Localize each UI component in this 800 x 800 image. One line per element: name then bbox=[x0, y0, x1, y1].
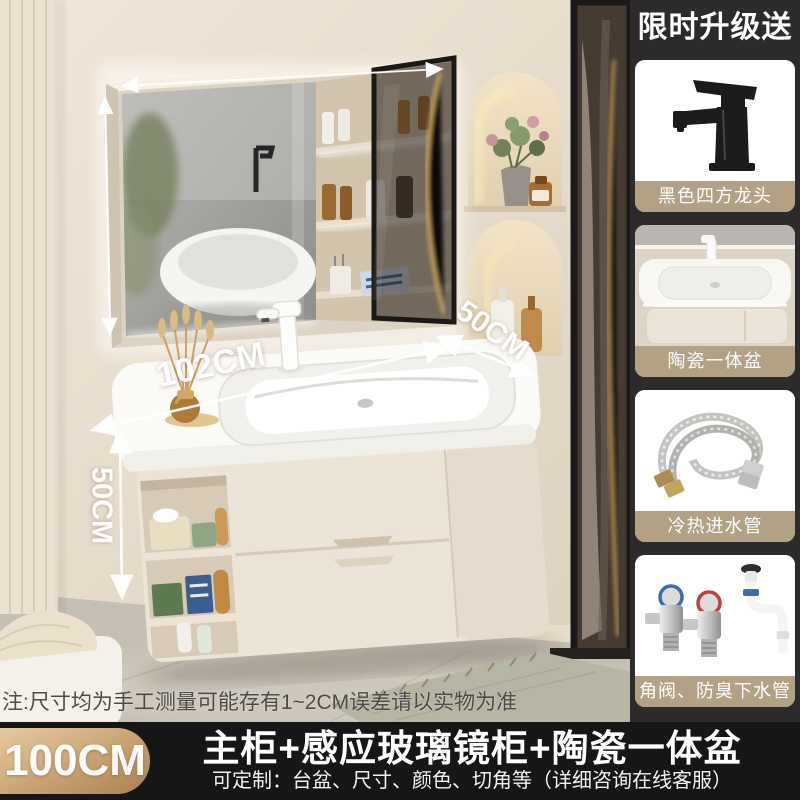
gift-item-card-hoses: 冷热进水管 bbox=[635, 390, 795, 542]
gift-sidebar: 限时升级送 bbox=[630, 0, 800, 722]
gift-item-label: 冷热进水管 bbox=[635, 511, 795, 542]
bathroom-photo: 102CM 50CM 50CM 注:尺寸均为手工测量可能存有1~2CM误差请以实… bbox=[0, 0, 630, 722]
measurement-note: 注:尺寸均为手工测量可能存有1~2CM误差请以实物为准 bbox=[2, 686, 472, 716]
gift-item-card-basin: 陶瓷一体盆 bbox=[635, 225, 795, 377]
customization-subtitle: 可定制：台盆、尺寸、颜色、切角等（详细咨询在线客服） bbox=[150, 770, 794, 793]
gift-item-label: 角阀、防臭下水管 bbox=[635, 676, 795, 707]
glass-door bbox=[372, 58, 454, 322]
wall-niche-top bbox=[464, 72, 566, 212]
gift-item-card-faucet: 黑色四方龙头 bbox=[635, 60, 795, 212]
gift-item-label: 陶瓷一体盆 bbox=[635, 346, 795, 377]
size-badge: 100CM bbox=[0, 728, 150, 794]
product-listing-image: 102CM 50CM 50CM 注:尺寸均为手工测量可能存有1~2CM误差请以实… bbox=[0, 0, 800, 800]
gift-item-card-valves: 角阀、防臭下水管 bbox=[635, 555, 795, 707]
angle-valve-drain-image bbox=[635, 555, 795, 676]
black-square-faucet-image bbox=[635, 60, 795, 181]
water-inlet-hoses-image bbox=[635, 390, 795, 511]
gift-header: 限时升级送 bbox=[638, 8, 793, 48]
gift-item-label: 黑色四方龙头 bbox=[635, 181, 795, 212]
product-title: 主柜+感应玻璃镜柜+陶瓷一体盆 bbox=[150, 729, 794, 769]
angle-valves-icon bbox=[645, 586, 721, 657]
vanity-open-shelf bbox=[138, 475, 240, 659]
black-faucet-icon bbox=[673, 80, 757, 171]
drain-pipe-icon bbox=[741, 564, 789, 653]
ceramic-basin-image bbox=[635, 225, 795, 346]
bathroom-scene-illustration bbox=[0, 0, 630, 722]
footer-bar: 100CM 主柜+感应玻璃镜柜+陶瓷一体盆 可定制：台盆、尺寸、颜色、切角等（详… bbox=[0, 722, 800, 800]
footer-text-block: 主柜+感应玻璃镜柜+陶瓷一体盆 可定制：台盆、尺寸、颜色、切角等（详细咨询在线客… bbox=[150, 729, 800, 793]
gift-card-list: 黑色四方龙头 bbox=[635, 60, 795, 707]
height-dimension-label: 50CM bbox=[85, 463, 118, 549]
